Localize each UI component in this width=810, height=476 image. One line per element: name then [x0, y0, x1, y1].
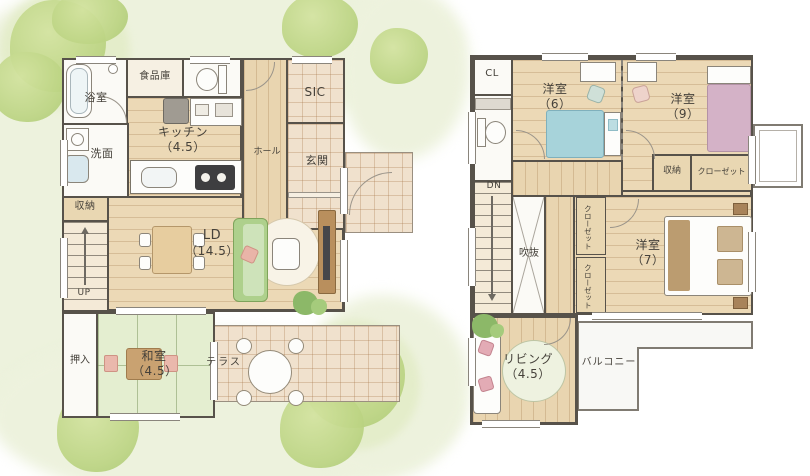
washing-machine-drum [71, 133, 84, 146]
bed-double [664, 216, 752, 296]
window-terrace-door [116, 307, 206, 315]
corridor-2f-vertical [544, 195, 575, 315]
throw-pillow [477, 339, 495, 357]
label-ld-name: LD [203, 228, 221, 243]
label-kitchen-size: （4.5） [150, 140, 216, 155]
window [110, 413, 180, 421]
label-living: リビング （4.5） [498, 352, 558, 382]
label-closet-v2: クローゼット [583, 260, 592, 312]
floor-plan-canvas: 浴室 食品庫 キッチン （4.5） 洗面 収納 ホール SIC 玄関 LD （1… [0, 0, 810, 476]
side-balcony-box [753, 124, 803, 188]
refrigerator [163, 98, 189, 124]
window [482, 420, 540, 428]
label-pantry: 食品庫 [130, 71, 180, 84]
window [60, 140, 68, 186]
window [542, 53, 588, 61]
window [60, 238, 68, 298]
bed-blue-pillow-area [604, 112, 621, 156]
label-yoshitsu9-name: 洋室 [670, 92, 695, 106]
stove [195, 165, 235, 190]
burner [217, 173, 226, 182]
stairs-up-line [84, 233, 86, 285]
label-cl: CL [477, 68, 507, 81]
label-entrance: 玄関 [300, 154, 334, 168]
window [748, 232, 756, 292]
room-divider-dashed [621, 60, 623, 160]
kitchen-back-counter [190, 98, 242, 126]
label-closet-h: クローゼット [692, 167, 751, 177]
label-yoshitsu7-name: 洋室 [635, 238, 660, 252]
label-yoshitsu9: 洋室 （9） [662, 92, 704, 122]
shower-icon [108, 64, 118, 74]
kitchen-island [130, 160, 242, 194]
room-entrance [286, 122, 345, 230]
window [190, 56, 230, 64]
sofa-2f [473, 328, 501, 414]
stairs-dn-line [491, 196, 493, 294]
toilet-counter-2f [475, 98, 511, 110]
label-washitsu-name: 和室 [141, 349, 166, 363]
desk [580, 62, 616, 82]
label-oshiire: 押入 [66, 355, 94, 368]
label-yoshitsu9-size: （9） [662, 107, 704, 122]
label-sic: SIC [296, 85, 334, 100]
label-ld: LD （14.5） [184, 228, 240, 259]
terrace-chair [288, 390, 304, 406]
counter-appliance [215, 103, 233, 117]
toilet-2f [485, 121, 506, 144]
label-dn: DN [482, 181, 506, 192]
bed-blue [546, 110, 604, 158]
label-terrace: テラス [202, 357, 246, 370]
label-yoshitsu6-size: （6） [534, 97, 576, 112]
label-bath: 浴室 [76, 91, 116, 105]
floor-cushion [104, 355, 118, 372]
label-void: 吹抜 [517, 248, 541, 261]
window [468, 228, 476, 286]
label-ld-size: （14.5） [184, 244, 240, 259]
dining-chair [139, 256, 151, 270]
bed-pink-pillow-area [707, 66, 751, 84]
label-kitchen: キッチン （4.5） [150, 125, 216, 155]
tv [323, 226, 330, 280]
stairs-dn-arrow [488, 294, 496, 301]
label-yoshitsu7-size: （7） [626, 253, 670, 268]
nightstand [733, 297, 748, 309]
label-yoshitsu6-name: 洋室 [542, 82, 567, 96]
entrance-step [288, 192, 343, 198]
label-yoshitsu7: 洋室 （7） [626, 238, 670, 268]
plant-1f-leaf [311, 299, 327, 315]
tv-board [318, 210, 336, 294]
label-hall: ホール [250, 147, 284, 158]
label-living-size: （4.5） [498, 367, 558, 382]
dining-chair [139, 233, 151, 247]
label-living-name: リビング [503, 352, 553, 366]
label-balcony: バルコニー [578, 357, 640, 370]
label-up: UP [70, 288, 98, 299]
terrace-chair [236, 390, 252, 406]
terrace-chair [288, 338, 304, 354]
nightstand [733, 203, 748, 215]
coffee-table [272, 238, 300, 270]
burner [201, 173, 210, 182]
kitchen-sink [141, 167, 177, 188]
pillow [717, 226, 743, 252]
label-storage-1f: 収納 [64, 201, 106, 214]
label-kitchen-name: キッチン [158, 125, 208, 139]
toilet-tank-1f [218, 65, 227, 94]
window [468, 338, 476, 386]
pillow [608, 119, 618, 131]
window [340, 240, 348, 302]
entrance-door-gap [340, 168, 348, 214]
label-yoshitsu6: 洋室 （6） [534, 82, 576, 112]
label-closet-v1: クローゼット [583, 201, 592, 253]
counter-appliance [195, 104, 209, 116]
label-washitsu-size: （4.5） [132, 364, 176, 379]
bed-pink [707, 84, 751, 152]
window [468, 112, 476, 164]
window-washitsu-door [210, 342, 218, 400]
bed-runner [668, 220, 690, 291]
label-washroom: 洗面 [82, 147, 122, 161]
side-balcony-inner [759, 130, 797, 182]
terrace-chair [236, 338, 252, 354]
corridor-2f [511, 160, 623, 197]
window [636, 53, 676, 61]
window [292, 56, 332, 64]
pillow [717, 259, 743, 285]
window-balcony-door [592, 312, 702, 320]
window [76, 56, 116, 64]
label-washitsu: 和室 （4.5） [132, 349, 176, 379]
desk [627, 62, 657, 82]
throw-pillow [477, 375, 494, 392]
terrace-table [248, 350, 292, 394]
toilet-1f [196, 68, 218, 91]
label-storage-2f: 収納 [655, 166, 689, 177]
